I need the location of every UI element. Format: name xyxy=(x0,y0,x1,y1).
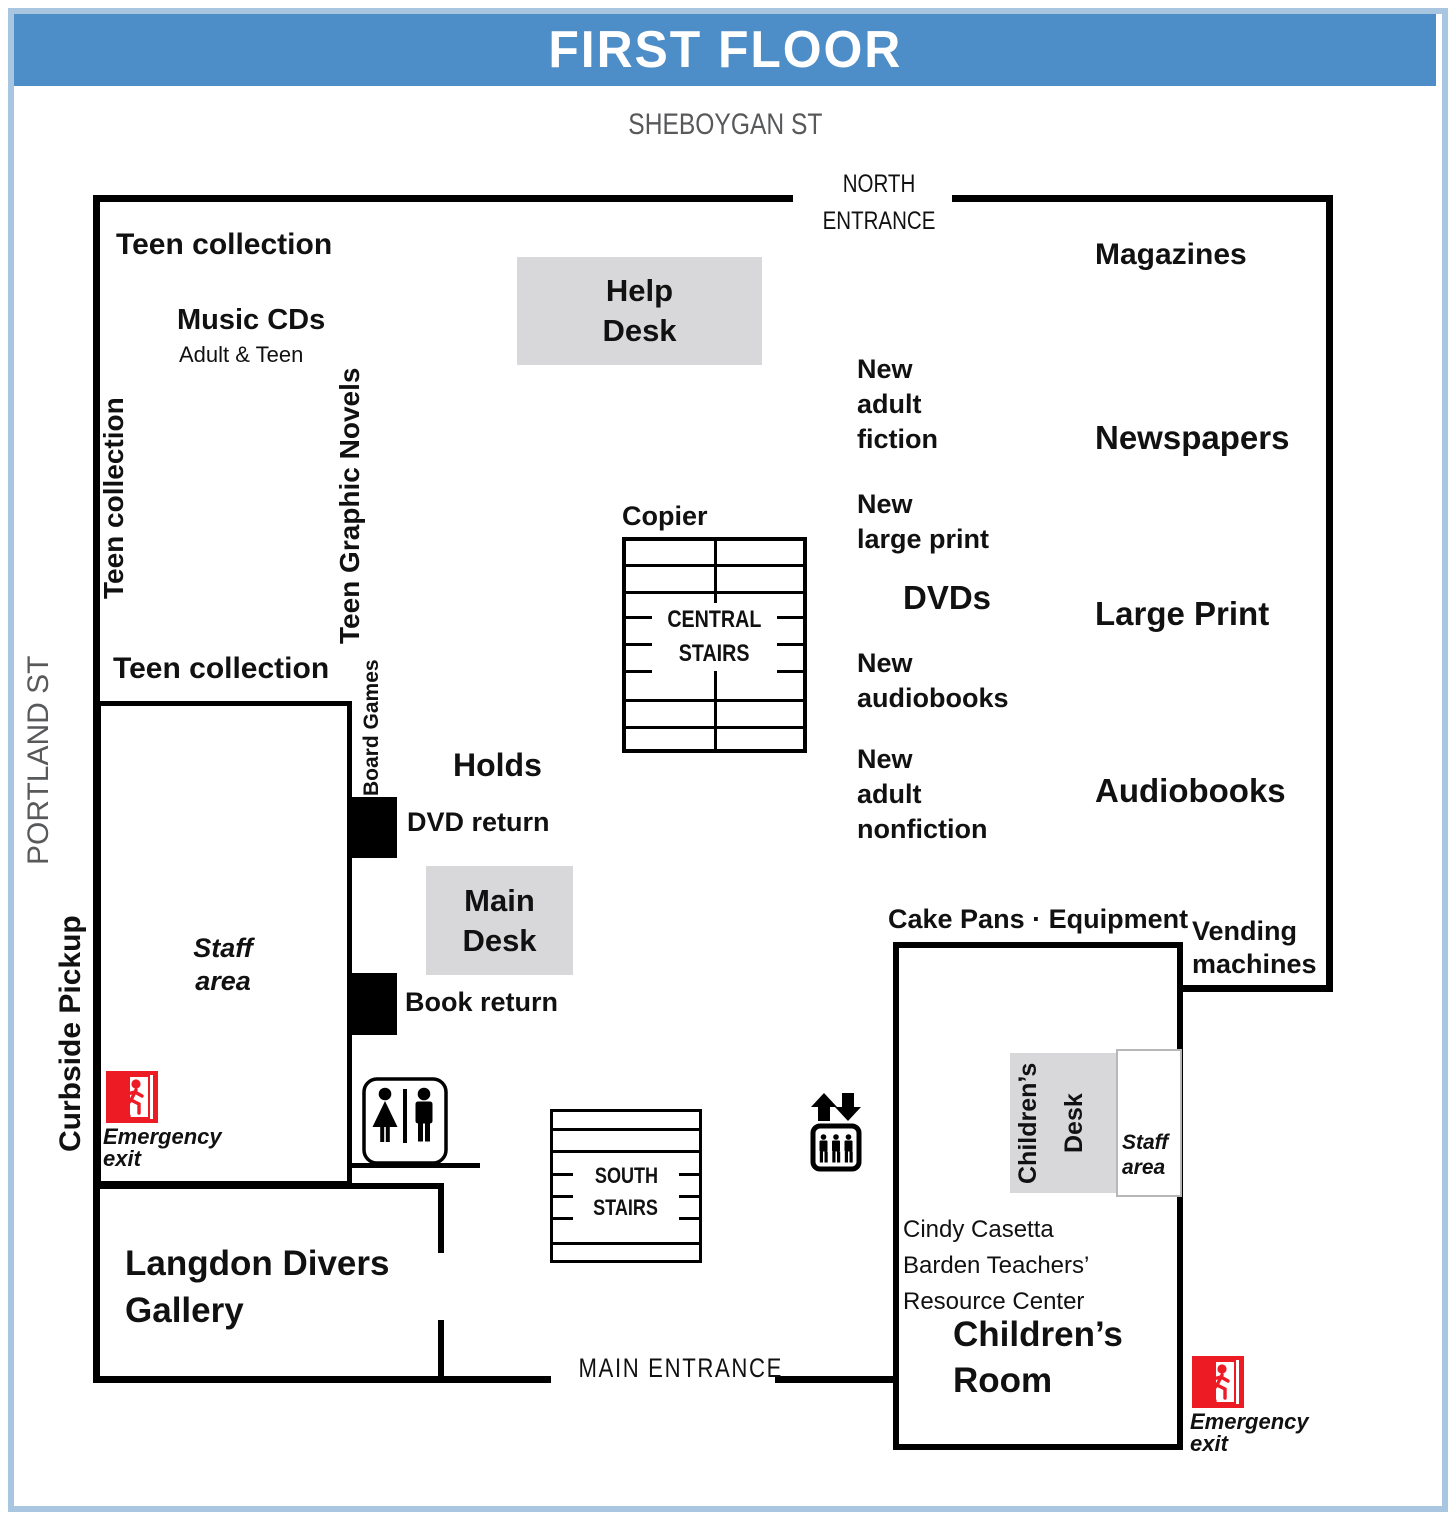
page-title: FIRST FLOOR xyxy=(548,20,902,80)
dvd-return-bin xyxy=(352,797,397,858)
new-audiobooks-label: New audiobooks xyxy=(857,646,1009,716)
wall-top-left xyxy=(93,195,793,202)
new-adult-nonfiction-label: New adult nonfiction xyxy=(857,742,987,847)
emergency-exit-label: Emergency exit xyxy=(103,1126,222,1170)
main-desk: Main Desk xyxy=(426,866,573,975)
north-entrance-label: NORTH ENTRANCE xyxy=(795,166,963,240)
emergency-exit-label: Emergency exit xyxy=(1190,1411,1309,1455)
new-large-print-label: New large print xyxy=(857,487,989,557)
teen-collection-lower-label: Teen collection xyxy=(113,652,329,685)
teen-graphic-novels-label: Teen Graphic Novels xyxy=(334,363,366,648)
large-print-label: Large Print xyxy=(1095,596,1269,632)
staff-area-right-label: Staff area xyxy=(1122,1130,1168,1180)
emergency-exit-icon xyxy=(106,1071,158,1123)
street-label-sheboygan: SHEBOYGAN ST xyxy=(575,108,875,142)
childrens-desk-label-line1: Children’s xyxy=(1014,1055,1043,1191)
wall-gallery-top xyxy=(96,1183,444,1189)
title-bar: FIRST FLOOR xyxy=(14,14,1436,86)
holds-label: Holds xyxy=(453,748,542,783)
book-return-bin xyxy=(352,973,397,1035)
wall-bottom-right xyxy=(775,1376,897,1383)
wall-vending-bottom xyxy=(1183,985,1333,992)
vending-machines-label: Vending machines xyxy=(1192,915,1317,981)
staff-area-label: Staff area xyxy=(188,932,258,998)
langdon-divers-gallery-label: Langdon Divers Gallery xyxy=(125,1240,389,1334)
central-stairs: CENTRAL STAIRS xyxy=(622,537,807,753)
wall-top-right xyxy=(952,195,1333,202)
newspapers-label: Newspapers xyxy=(1095,420,1289,456)
teen-collection-top-label: Teen collection xyxy=(116,228,332,261)
south-stairs-label: SOUTH STAIRS xyxy=(553,1160,699,1224)
wall-bottom-left xyxy=(93,1376,551,1383)
cake-pans-equipment-label: Cake Pans · Equipment xyxy=(888,905,1188,935)
new-adult-fiction-label: New adult fiction xyxy=(857,352,938,457)
copier-label: Copier xyxy=(622,502,708,532)
audiobooks-label: Audiobooks xyxy=(1095,773,1286,809)
street-label-portland: PORTLAND ST xyxy=(22,648,56,873)
wall-gallery-right-upper xyxy=(438,1183,444,1253)
teachers-resource-center-label: Cindy Casetta Barden Teachers’ Resource … xyxy=(903,1212,1089,1320)
main-entrance-label: MAIN ENTRANCE xyxy=(556,1354,771,1384)
wall-gallery-right-lower xyxy=(438,1320,444,1382)
board-games-label: Board Games xyxy=(360,658,384,798)
teen-collection-left-label: Teen collection xyxy=(98,383,130,613)
music-cds-label: Music CDs xyxy=(177,305,325,337)
book-return-label: Book return xyxy=(405,988,558,1018)
magazines-label: Magazines xyxy=(1095,238,1247,271)
music-cds-sub-label: Adult & Teen xyxy=(179,343,303,367)
restroom-icon xyxy=(362,1077,448,1165)
childrens-desk-label-line2: Desk xyxy=(1060,1055,1089,1191)
south-stairs: SOUTH STAIRS xyxy=(550,1109,702,1263)
wall-right xyxy=(1326,195,1333,992)
emergency-exit-icon xyxy=(1192,1356,1244,1408)
curbside-pickup-label: Curbside Pickup xyxy=(54,900,88,1168)
library-first-floor-map: FIRST FLOOR SHEBOYGAN ST PORTLAND ST NOR… xyxy=(0,0,1450,1514)
central-stairs-label: CENTRAL STAIRS xyxy=(626,603,803,671)
dvd-return-label: DVD return xyxy=(407,808,550,838)
childrens-room-label: Children’s Room xyxy=(953,1312,1123,1404)
dvds-label: DVDs xyxy=(903,580,991,616)
elevator-icon xyxy=(810,1092,862,1172)
help-desk: Help Desk xyxy=(517,257,762,365)
